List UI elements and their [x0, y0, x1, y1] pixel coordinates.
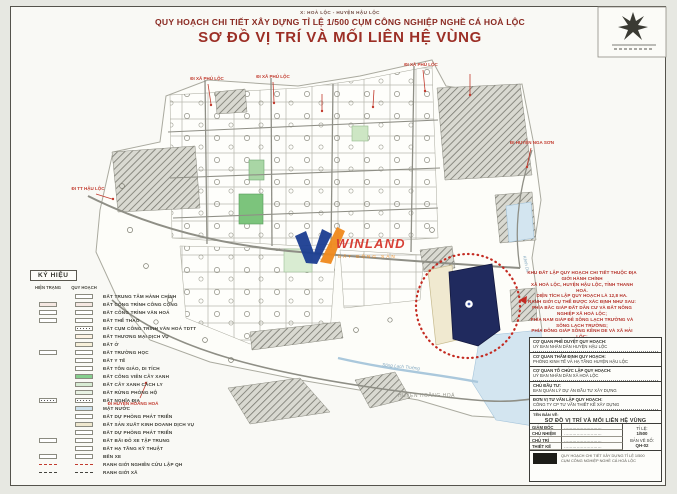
- callout-line: XÃ HOÀ LỘC, HUYỆN HẬU LỘC, TỈNH THANH HO…: [526, 282, 638, 294]
- legend-item-label: ĐẤT NGHĨA ĐỊA: [103, 398, 140, 403]
- legend-item: ĐẤT TRUNG TÂM HÀNH CHÍNH: [30, 292, 182, 300]
- legend-title: KÝ HIỆU: [30, 270, 77, 281]
- legend-item: ĐẤT NGHĨA ĐỊA: [30, 396, 182, 404]
- legend-item-label: ĐẤT DỰ PHÒNG PHÁT TRIỂN: [103, 414, 172, 419]
- pin-label: ĐI XÃ PHÚ LỘC: [256, 72, 290, 79]
- legend-swatch: [75, 318, 93, 323]
- legend-item-label: ĐẤT TRUNG TÂM HÀNH CHÍNH: [103, 294, 176, 299]
- legend-swatch: [75, 302, 93, 307]
- legend-item-label: ĐẤT TRƯỜNG HỌC: [103, 350, 149, 355]
- title-block-sections: CƠ QUAN PHÊ DUYỆT QUY HOẠCH:UỶ BAN NHÂN …: [530, 338, 661, 411]
- header-subtitle: QUY HOẠCH CHI TIẾT XÂY DỰNG TỈ LỆ 1/500 …: [120, 17, 560, 27]
- legend-item: ĐẤT CÔNG VIÊN CÂY XANH: [30, 372, 182, 380]
- role-label: THIẾT KẾ: [530, 443, 562, 450]
- stamp-note: QUY HOẠCH CHI TIẾT XÂY DỰNG TỈ LỆ 1/500C…: [561, 453, 645, 463]
- legend-swatch: [39, 318, 57, 323]
- watermark-sub: BẤT ĐỘNG SẢN: [338, 253, 397, 259]
- header-location: X: HOÀ LỘC - HUYỆN HẬU LỘC: [120, 10, 560, 15]
- legend-swatch: [75, 334, 93, 339]
- legend-items: ĐẤT TRUNG TÂM HÀNH CHÍNHĐẤT CÔNG TRÌNH C…: [30, 292, 182, 476]
- legend-col-planned: QUY HOẠCH: [70, 285, 98, 290]
- legend-item: ĐẤT Ở: [30, 340, 182, 348]
- legend-item: ĐẤT TÔN GIÁO, DI TÍCH: [30, 364, 182, 372]
- legend-item: ĐẤT THƯƠNG MẠI DỊCH VỤ: [30, 332, 182, 340]
- pin-label: ĐI TT HẬU LỘC: [72, 184, 106, 191]
- page-title: SƠ ĐỒ VỊ TRÍ VÀ MỐI LIÊN HỆ VÙNG: [120, 29, 560, 46]
- legend-swatch: [39, 398, 57, 403]
- legend-item: ĐẤT TRƯỜNG HỌC: [30, 348, 182, 356]
- legend-swatch: [39, 310, 57, 315]
- legend-item: ĐẤT CÔNG TRÌNH CÔNG CỘNG: [30, 300, 182, 308]
- legend-item-label: ĐẤT RỪNG PHÒNG HỘ: [103, 390, 157, 395]
- legend-swatch: [75, 374, 93, 379]
- legend-swatch: [75, 464, 93, 465]
- legend-swatch: [75, 398, 93, 403]
- legend-item-label: ĐẤT Y TẾ: [103, 358, 125, 363]
- legend-item-label: ĐẤT HẠ TẦNG KỸ THUẬT: [103, 446, 163, 451]
- pin-label: ĐI HUYỆN NGA SƠN: [510, 138, 554, 145]
- legend-swatch: [39, 438, 57, 443]
- sheet-number: QH-02: [625, 443, 659, 448]
- legend-item: RANH GIỚI NGHIÊN CỨU LẬP QH: [30, 460, 182, 468]
- legend-item-label: ĐẤT THỂ THAO: [103, 318, 140, 323]
- legend-item: MẶT NƯỚC: [30, 404, 182, 412]
- legend-swatch: [75, 358, 93, 363]
- legend-swatch: [75, 342, 93, 347]
- sheet-number-label: BẢN VẼ SỐ:: [630, 438, 654, 443]
- legend-item-label: ĐẤT Ở: [103, 342, 119, 347]
- legend-item: ĐẤT BÃI ĐỖ XE TẬP TRUNG: [30, 436, 182, 444]
- legend-swatch: [75, 406, 93, 411]
- scale-value: 1/500: [625, 431, 659, 436]
- title-block: CƠ QUAN PHÊ DUYỆT QUY HOẠCH:UỶ BAN NHÂN …: [529, 337, 662, 482]
- watermark-brand: WINLAND: [336, 236, 406, 251]
- callout-line: PHÍA NAM GIÁP ĐÊ SÔNG LẠCH TRƯỜNG VÀ SÔN…: [526, 317, 638, 329]
- legend-swatch: [75, 414, 93, 419]
- drawing-name-caption: TÊN BẢN VẼ:: [533, 412, 658, 417]
- legend-item-label: RANH GIỚI XÃ: [103, 470, 138, 475]
- legend-swatch: [75, 472, 93, 473]
- legend-item-label: RANH GIỚI NGHIÊN CỨU LẬP QH: [103, 462, 182, 467]
- legend-item-label: ĐẤT CÂY XANH CÁCH LY: [103, 382, 163, 387]
- callout-line: PHÍA BẮC GIÁP ĐẤT DÂN CƯ VÀ ĐẤT NÔNG NGH…: [526, 305, 638, 317]
- legend-item: ĐẤT RỪNG PHÒNG HỘ: [30, 388, 182, 396]
- legend-swatch: [75, 438, 93, 443]
- title-block-section: ĐƠN VỊ TƯ VẤN LẬP QUY HOẠCH:CÔNG TY CP T…: [530, 396, 661, 411]
- legend-swatch: [75, 350, 93, 355]
- legend-swatch: [75, 430, 93, 435]
- parcel-blocks: [170, 66, 438, 344]
- site-parcel-navy: [449, 264, 500, 346]
- legend-item-label: ĐẤT TÔN GIÁO, DI TÍCH: [103, 366, 160, 371]
- legend-item-label: BẾN XE: [103, 454, 121, 459]
- legend-item-label: ĐẤT CÔNG TRÌNH VĂN HOÁ: [103, 310, 170, 315]
- role-name: ………………………: [562, 443, 623, 450]
- legend-item: ĐẤT CÔNG TRÌNH VĂN HOÁ: [30, 308, 182, 316]
- legend-item: ĐẤT DỰ PHÒNG PHÁT TRIỂN: [30, 428, 182, 436]
- legend-col-existing: HIỆN TRẠNG: [30, 285, 66, 290]
- legend-swatch: [75, 382, 93, 387]
- pin-label: ĐI XÃ PHÚ LỘC: [190, 74, 224, 81]
- label-huyen-hoang-hoa: HUYỆN HOẰNG HOÁ: [398, 391, 455, 399]
- callout-line: KHU ĐẤT LẬP QUY HOẠCH CHI TIẾT THUỘC ĐỊA…: [526, 270, 638, 282]
- legend-swatch: [75, 366, 93, 371]
- legend-item: ĐẤT CÂY XANH CÁCH LY: [30, 380, 182, 388]
- legend-item: RANH GIỚI XÃ: [30, 468, 182, 476]
- legend-item: ĐẤT SẢN XUẤT KINH DOANH DỊCH VỤ: [30, 420, 182, 428]
- legend-item-label: ĐẤT CÔNG VIÊN CÂY XANH: [103, 374, 169, 379]
- header: X: HOÀ LỘC - HUYỆN HẬU LỘC QUY HOẠCH CHI…: [120, 10, 560, 46]
- title-block-section: CHỦ ĐẦU TƯ:BAN QUẢN LÝ DỰ ÁN ĐẦU TƯ XÂY …: [530, 382, 661, 397]
- title-block-section: CƠ QUAN THẨM ĐỊNH QUY HOẠCH:PHÒNG KINH T…: [530, 353, 661, 368]
- sheet-meta: TỈ LỆ: 1/500 BẢN VẼ SỐ: QH-02: [623, 424, 661, 450]
- legend-swatch: [75, 446, 93, 451]
- title-block-section: CƠ QUAN PHÊ DUYỆT QUY HOẠCH:UỶ BAN NHÂN …: [530, 338, 661, 353]
- legend-item: ĐẤT Y TẾ: [30, 356, 182, 364]
- scale-label: TỈ LỆ:: [636, 426, 647, 431]
- drawing-name-row: TÊN BẢN VẼ: SƠ ĐỒ VỊ TRÍ VÀ MỐI LIÊN HỆ …: [530, 411, 661, 424]
- pin-label: ĐI XÃ PHÚ LỘC: [404, 60, 438, 67]
- legend-item-label: ĐẤT CÔNG TRÌNH CÔNG CỘNG: [103, 302, 178, 307]
- stamp-row: QUY HOẠCH CHI TIẾT XÂY DỰNG TỈ LỆ 1/500C…: [530, 451, 661, 466]
- legend-swatch: [75, 422, 93, 427]
- legend-swatch: [75, 326, 93, 331]
- legend-item-label: MẶT NƯỚC: [103, 406, 130, 411]
- legend-swatch: [39, 302, 57, 307]
- legend-swatch: [75, 454, 93, 459]
- legend-item: BẾN XE: [30, 452, 182, 460]
- legend-item-label: ĐẤT THƯƠNG MẠI DỊCH VỤ: [103, 334, 169, 339]
- legend-swatch: [39, 464, 57, 465]
- legend-swatch: [75, 390, 93, 395]
- legend-item-label: ĐẤT SẢN XUẤT KINH DOANH DỊCH VỤ: [103, 422, 194, 427]
- legend-swatch: [39, 454, 57, 459]
- legend-swatch: [39, 350, 57, 355]
- legend-item-label: ĐẤT CỤM CÔNG TRÌNH VĂN HOÁ TDTT: [103, 326, 196, 331]
- legend-item-label: ĐẤT DỰ PHÒNG PHÁT TRIỂN: [103, 430, 172, 435]
- legend-swatch: [75, 310, 93, 315]
- legend-swatch: [39, 472, 57, 473]
- compass-box: [598, 7, 666, 57]
- legend-item: ĐẤT HẠ TẦNG KỸ THUẬT: [30, 444, 182, 452]
- legend-column-headers: HIỆN TRẠNG QUY HOẠCH: [30, 285, 182, 290]
- legend-panel: KÝ HIỆU HIỆN TRẠNG QUY HOẠCH ĐẤT TRUNG T…: [30, 264, 182, 476]
- title-block-section: CƠ QUAN TỔ CHỨC LẬP QUY HOẠCH:UỶ BAN NHÂ…: [530, 367, 661, 382]
- legend-swatch: [75, 294, 93, 299]
- legend-item: ĐẤT DỰ PHÒNG PHÁT TRIỂN: [30, 412, 182, 420]
- legend-item: ĐẤT CỤM CÔNG TRÌNH VĂN HOÁ TDTT: [30, 324, 182, 332]
- legend-item-label: ĐẤT BÃI ĐỖ XE TẬP TRUNG: [103, 438, 170, 443]
- legend-item: ĐẤT THỂ THAO: [30, 316, 182, 324]
- stamp-box: [533, 453, 557, 464]
- signature-table: GIÁM ĐỐC………………………CHỦ NHIỆM………………………CHỦ T…: [530, 424, 661, 451]
